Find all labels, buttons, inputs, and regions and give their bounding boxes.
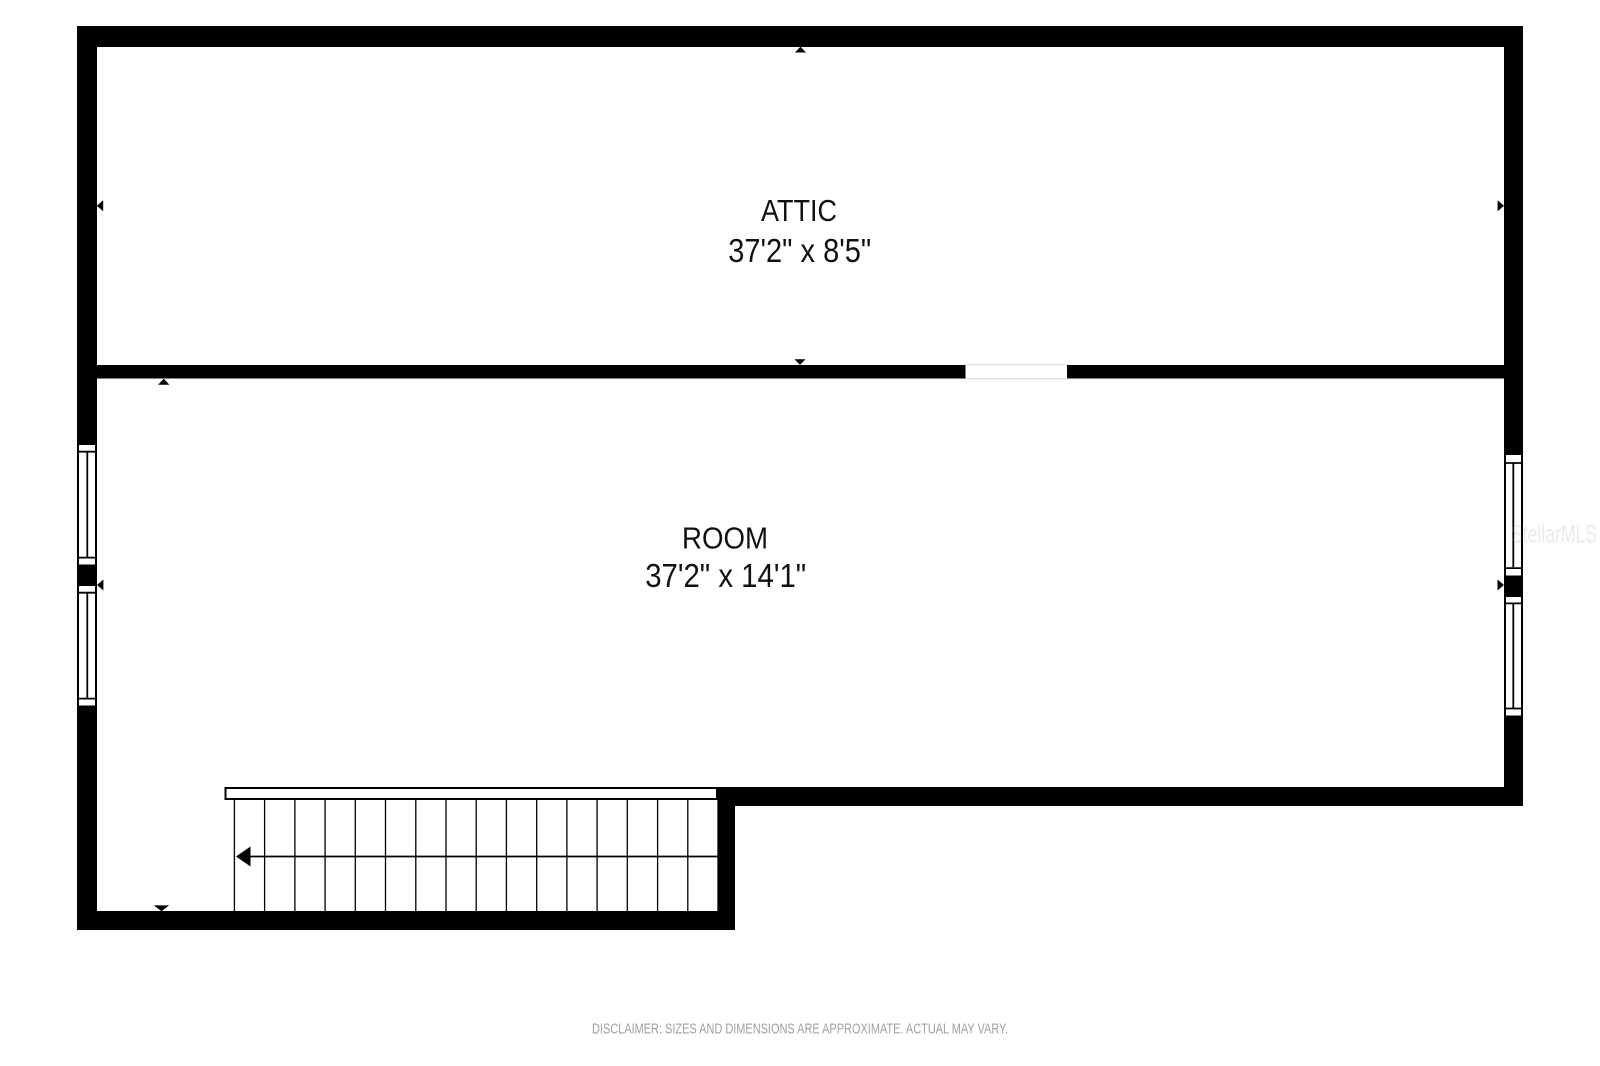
svg-text:37'2" x 14'1": 37'2" x 14'1" xyxy=(645,557,806,594)
svg-text:DISCLAIMER: SIZES AND DIMENSIO: DISCLAIMER: SIZES AND DIMENSIONS ARE APP… xyxy=(592,1022,1008,1038)
svg-text:ROOM: ROOM xyxy=(682,521,768,555)
svg-text:ATTIC: ATTIC xyxy=(761,194,837,228)
svg-text:37'2" x 8'5": 37'2" x 8'5" xyxy=(728,232,871,269)
svg-text:StellarMLS: StellarMLS xyxy=(1511,521,1597,549)
